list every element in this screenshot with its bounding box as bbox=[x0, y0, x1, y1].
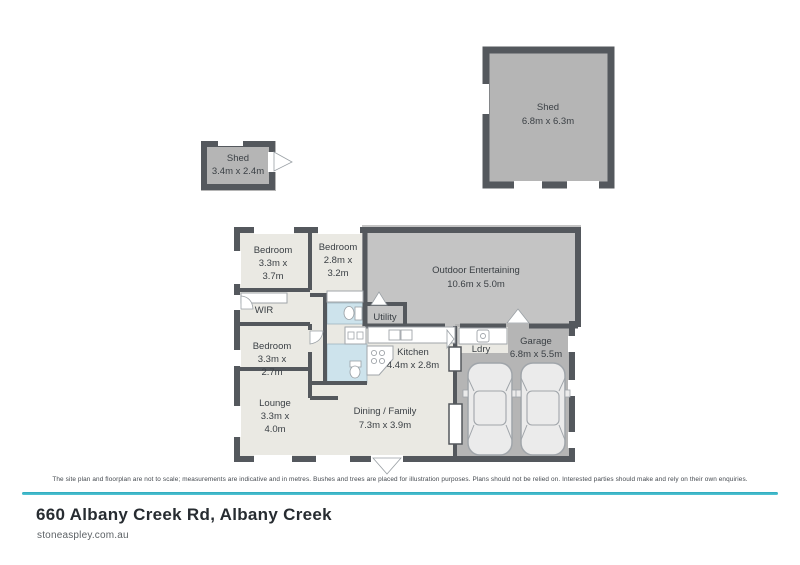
bedroom2-label: Bedroom bbox=[319, 242, 358, 253]
shed-small-window bbox=[218, 138, 243, 146]
utility-label: Utility bbox=[373, 312, 396, 323]
floorplan-svg: Shed 6.8m x 6.3m Shed 3.4m x 2.4m bbox=[0, 0, 800, 476]
shed-large: Shed 6.8m x 6.3m bbox=[480, 47, 614, 190]
disclaimer-text: The site plan and floorplan are not to s… bbox=[0, 476, 800, 483]
window bbox=[233, 350, 241, 366]
bedroom1-dims: 3.7m bbox=[262, 271, 283, 282]
shed-large-dims: 6.8m x 6.3m bbox=[522, 116, 574, 127]
entry-door-icon bbox=[373, 458, 401, 474]
outdoor-label: Outdoor Entertaining bbox=[432, 265, 520, 276]
property-address: 660 Albany Creek Rd, Albany Creek bbox=[36, 505, 332, 525]
car-icon bbox=[516, 363, 570, 455]
floorplan-page: Shed 6.8m x 6.3m Shed 3.4m x 2.4m bbox=[0, 0, 800, 565]
lounge-label: Lounge bbox=[259, 398, 291, 409]
bedroom2-dims: 3.2m bbox=[327, 268, 348, 279]
window bbox=[254, 455, 292, 463]
window bbox=[568, 432, 576, 448]
bedroom3-label: Bedroom bbox=[253, 341, 292, 352]
washer-icon bbox=[477, 330, 489, 342]
vanity-icon bbox=[345, 327, 366, 344]
sink-icon bbox=[401, 330, 412, 340]
laundry-counter bbox=[459, 328, 507, 344]
door-opening bbox=[233, 295, 241, 310]
kitchen-label: Kitchen bbox=[397, 347, 429, 358]
dining-dims: 7.3m x 3.9m bbox=[359, 420, 411, 431]
window bbox=[233, 406, 241, 437]
shed-large-door-opening bbox=[514, 181, 542, 190]
window bbox=[318, 226, 360, 234]
bedroom3-dims: 3.3m x bbox=[258, 354, 287, 365]
bedroom2-dims: 2.8m x bbox=[324, 255, 353, 266]
house: Bedroom 3.3m x 3.7m Bedroom 2.8m x 3.2m … bbox=[233, 225, 581, 474]
window bbox=[568, 336, 576, 352]
bedroom3-dims: 2.7m bbox=[261, 367, 282, 378]
kitchen-dims: 4.4m x 2.8m bbox=[387, 360, 439, 371]
outdoor-dims: 10.6m x 5.0m bbox=[447, 279, 505, 290]
window bbox=[316, 455, 350, 463]
pantry-cupboard bbox=[449, 347, 461, 371]
accent-divider bbox=[22, 492, 778, 495]
garage-dims: 6.8m x 5.5m bbox=[510, 349, 562, 360]
shed-large-window bbox=[480, 84, 489, 114]
shed-small-label: Shed bbox=[227, 153, 249, 164]
car-icon bbox=[463, 363, 517, 455]
window bbox=[254, 226, 294, 234]
bedroom1-dims: 3.3m x bbox=[259, 258, 288, 269]
toilet-icon bbox=[350, 361, 361, 378]
door-swing-icon bbox=[274, 152, 292, 171]
lounge-dims: 3.3m x bbox=[261, 411, 290, 422]
lounge-dims: 4.0m bbox=[264, 424, 285, 435]
wir-label: WIR bbox=[255, 305, 274, 316]
agency-website: stoneaspley.com.au bbox=[37, 530, 129, 541]
builtin-cupboard bbox=[449, 404, 462, 444]
shed-small-dims: 3.4m x 2.4m bbox=[212, 166, 264, 177]
bedroom1-label: Bedroom bbox=[254, 245, 293, 256]
linen-robe-icon bbox=[327, 291, 363, 302]
dining-label: Dining / Family bbox=[354, 406, 417, 417]
window bbox=[233, 251, 241, 284]
ldry-label: Ldry bbox=[472, 344, 491, 355]
shed-small: Shed 3.4m x 2.4m bbox=[201, 138, 292, 191]
shed-large-label: Shed bbox=[537, 102, 559, 113]
shed-large-door-opening bbox=[567, 181, 599, 190]
garage-label: Garage bbox=[520, 336, 552, 347]
sink-icon bbox=[389, 330, 400, 340]
